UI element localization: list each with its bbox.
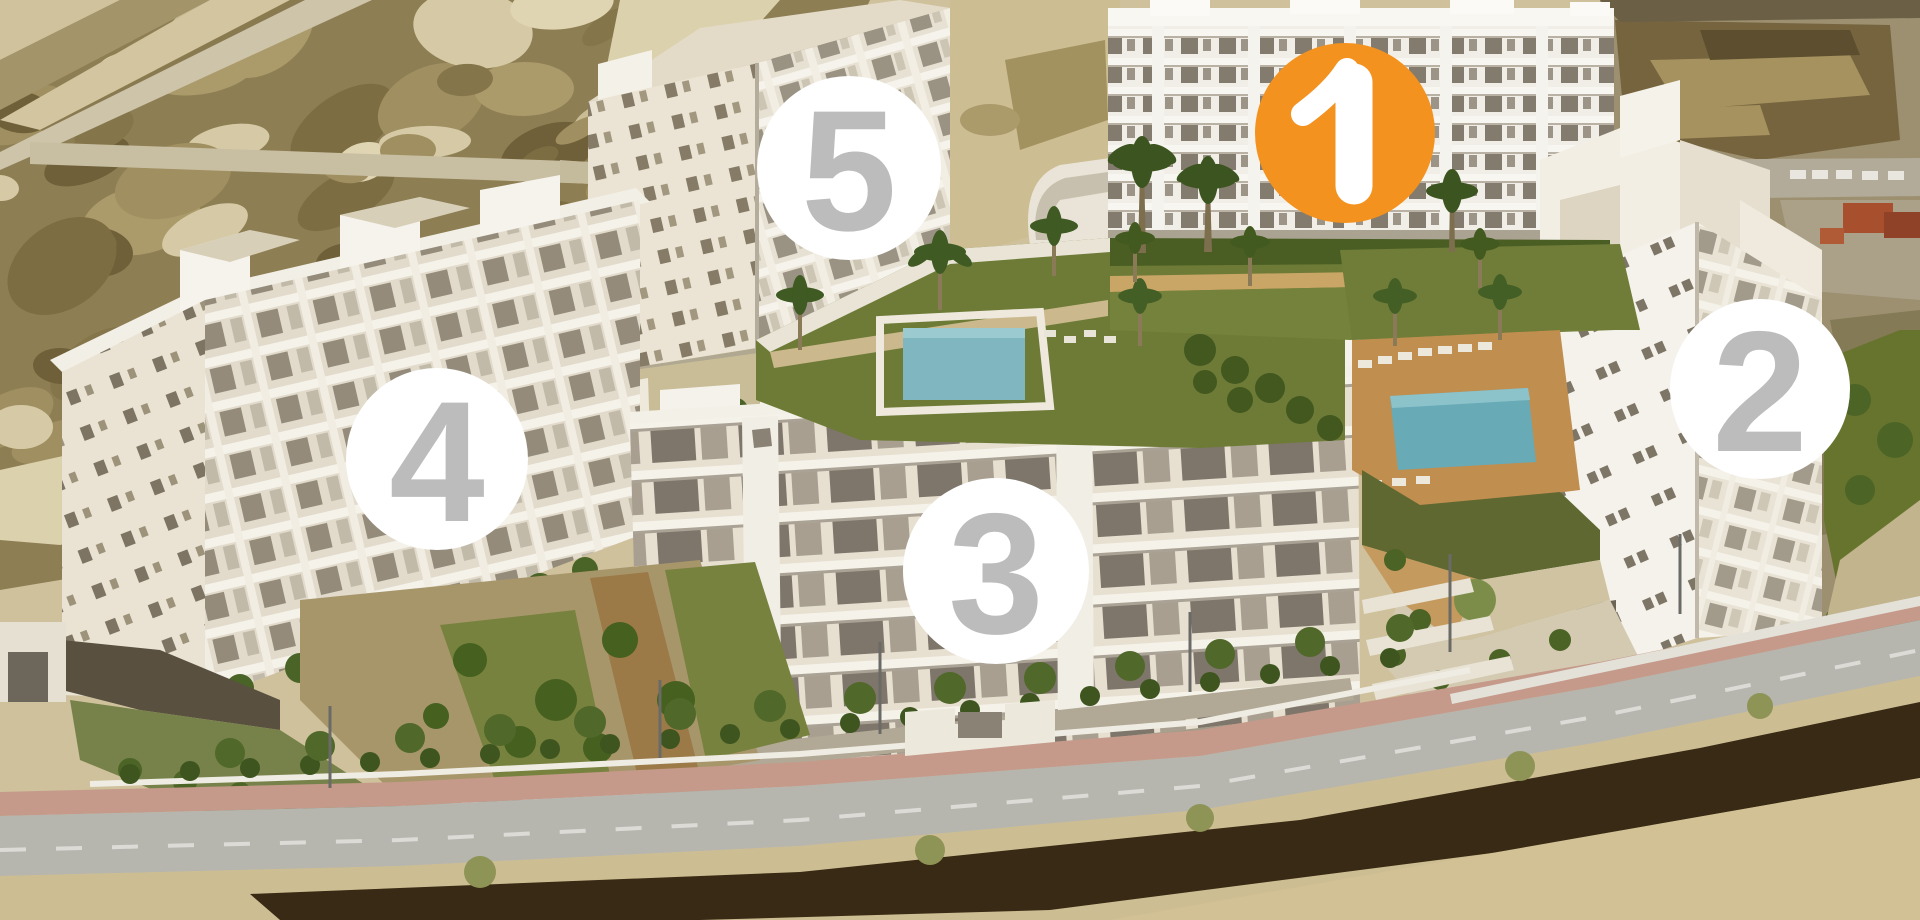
svg-text:5: 5 xyxy=(801,75,897,267)
svg-text:4: 4 xyxy=(389,366,485,558)
svg-text:3: 3 xyxy=(948,478,1044,670)
svg-text:2: 2 xyxy=(1712,296,1808,488)
